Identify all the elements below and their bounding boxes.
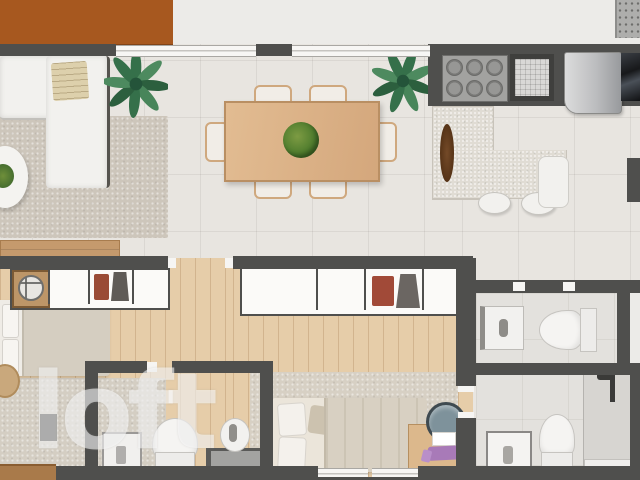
garment-red <box>372 276 394 306</box>
wall-top-left <box>0 44 116 56</box>
cooktop <box>442 55 508 102</box>
garment-gray <box>396 274 420 308</box>
toilet-tank <box>541 452 573 467</box>
burner <box>466 80 483 97</box>
door-jamb <box>458 386 474 392</box>
door-jamb <box>563 282 575 291</box>
burner <box>486 80 503 97</box>
wall-bath1-right <box>260 361 273 480</box>
living-plant <box>104 50 168 118</box>
closet-hanging-section <box>48 270 88 304</box>
ac-unit <box>615 0 640 38</box>
centerpiece-plant <box>283 122 319 158</box>
toilet <box>539 310 585 350</box>
loft-watermark: loft <box>30 362 212 463</box>
closet-hanging-section <box>316 268 364 310</box>
cutting-board <box>440 124 454 182</box>
burner <box>446 59 463 76</box>
dining-plant <box>372 48 434 114</box>
wall-bedroom1-top <box>0 256 168 269</box>
vanity-top <box>211 451 261 466</box>
burner <box>466 59 483 76</box>
burner <box>486 59 503 76</box>
island-bench <box>538 156 569 208</box>
closet-hanging-section <box>132 270 168 304</box>
bed-pillow <box>277 402 307 437</box>
wall-top-mid <box>256 44 292 56</box>
shower-pipe <box>610 372 615 402</box>
refrigerator <box>564 52 622 114</box>
door-jamb <box>168 258 176 268</box>
wall-powder-top <box>473 280 640 293</box>
door-jamb <box>458 412 474 418</box>
wall-master-top <box>233 256 473 269</box>
island-stool <box>478 192 511 214</box>
closet-garment-section <box>88 270 132 304</box>
wall-powder-bottom <box>473 363 640 375</box>
round-fixture <box>18 275 44 301</box>
kitchen-sink <box>510 54 554 101</box>
sink-basin <box>515 59 549 96</box>
wall-powder-right <box>617 280 630 375</box>
garment-red <box>94 274 109 300</box>
desk-paper <box>432 432 456 446</box>
faucet <box>499 319 508 337</box>
garment-dark <box>111 272 129 301</box>
closet-garment-section <box>364 268 422 310</box>
shower-zone <box>583 373 631 466</box>
wall-master-bath-right <box>630 373 640 480</box>
window-top-1 <box>116 45 256 57</box>
window-top-2 <box>292 45 430 57</box>
burner <box>446 80 463 97</box>
washbasin-cabinet <box>480 306 524 350</box>
floor-plan: loft <box>0 0 640 480</box>
faucet <box>503 446 513 464</box>
door-jamb <box>225 258 233 268</box>
terrace-roof <box>0 0 173 47</box>
faucet <box>229 424 237 442</box>
wall-bottom-2 <box>418 466 640 480</box>
toilet-tank <box>580 308 597 352</box>
door-jamb <box>513 282 525 291</box>
sofa-throw-blanket <box>51 61 90 101</box>
closet-plain-section <box>242 268 314 310</box>
wall-right-chunk <box>627 158 640 202</box>
oven <box>621 53 640 101</box>
master-bed <box>273 398 425 472</box>
